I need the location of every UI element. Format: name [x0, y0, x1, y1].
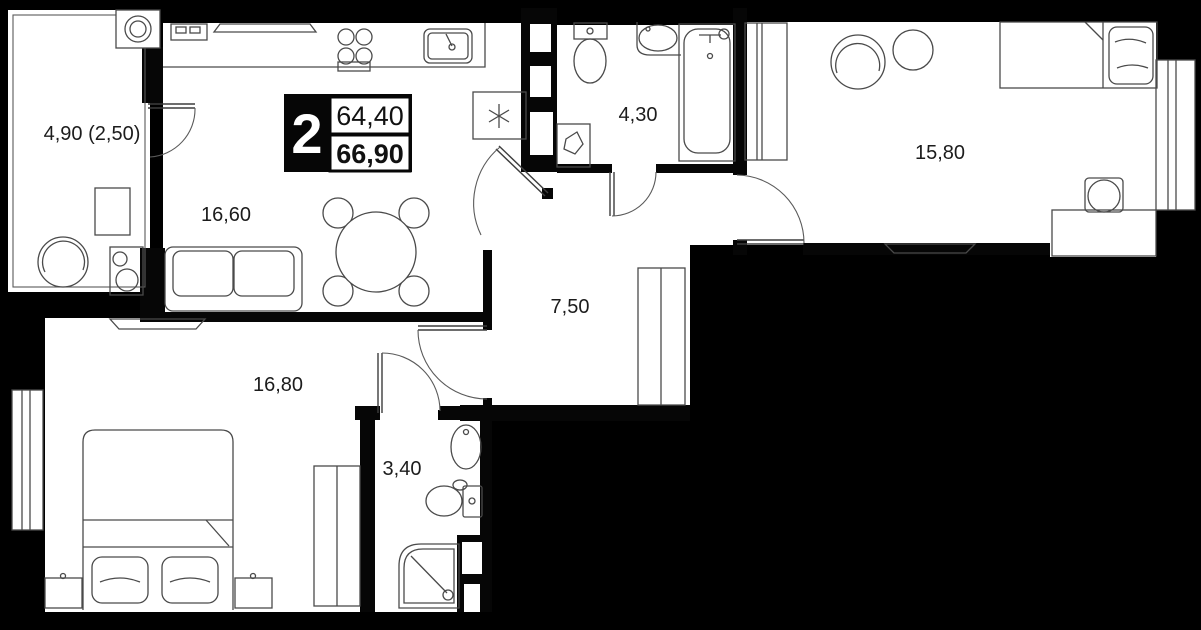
- wall-living-bottom: [140, 312, 492, 322]
- vent-shaft-cell-1: [462, 542, 482, 574]
- wall-balcony-divider-bottom: [140, 248, 165, 320]
- vent-shaft-cell-5: [530, 112, 553, 155]
- room-label-bathroom-bottom: 3,40: [383, 458, 422, 480]
- room-label-bedroom-right: 15,80: [915, 142, 965, 164]
- floor-plan: 2 64,40 66,90 4,90 (2,50) 16,60 4,30 15,…: [0, 0, 1201, 630]
- room-label-bathroom-top: 4,30: [619, 104, 658, 126]
- wall-bedroom-left-right: [360, 406, 375, 612]
- room-label-hallway: 7,50: [551, 296, 590, 318]
- floor-plan-canvas: 2 64,40 66,90 4,90 (2,50) 16,60 4,30 15,…: [0, 0, 1201, 630]
- room-label-balcony: 4,90 (2,50): [44, 123, 141, 145]
- vent-shaft-cell-2: [464, 584, 480, 612]
- wall-bathroom-top-2: [656, 164, 735, 173]
- wall-hall-bottom: [460, 405, 690, 421]
- wall-hall-left-upper: [483, 250, 492, 330]
- room-label-bedroom-left: 16,80: [253, 374, 303, 396]
- desk-nook-floor: [1050, 210, 1156, 257]
- badge-area-top: 64,40: [336, 101, 404, 131]
- left-window-band: [12, 390, 43, 530]
- badge-room-count: 2: [291, 102, 322, 165]
- apartment-badge: 2 64,40 66,90: [284, 94, 412, 172]
- wall-bathroom-top-1: [557, 164, 612, 173]
- bathroom-bottom-doorway: [379, 404, 438, 422]
- wall-door-post-bedroom-right: [733, 240, 747, 255]
- room-label-kitchen-living: 16,60: [201, 204, 251, 226]
- vent-shaft-cell-3: [530, 24, 551, 52]
- badge-area-bottom: 66,90: [336, 139, 404, 169]
- washing-machine: [116, 10, 160, 48]
- dining-table: [336, 212, 416, 292]
- vent-shaft-cell-4: [530, 66, 551, 97]
- room-balcony-floor: [8, 10, 150, 292]
